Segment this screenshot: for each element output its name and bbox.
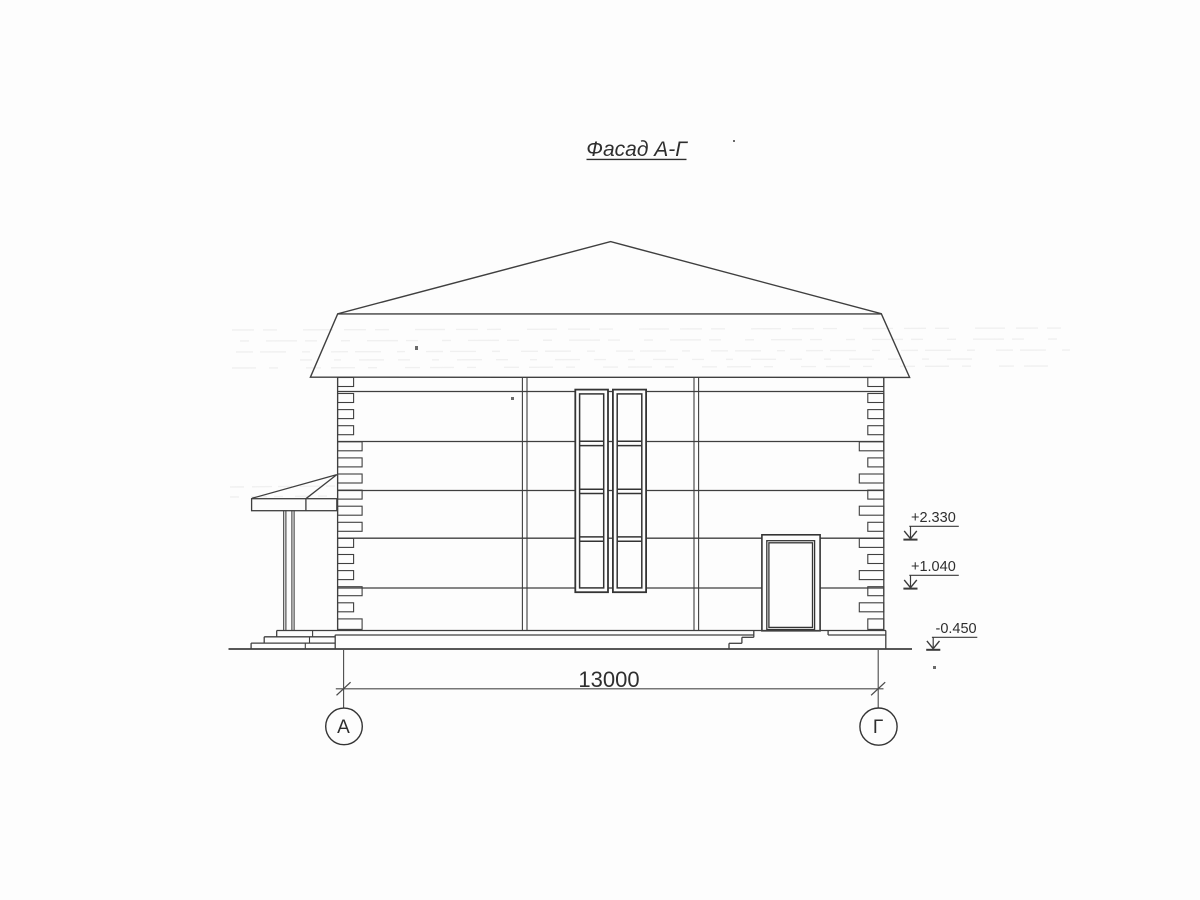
svg-text:Г: Г xyxy=(873,717,883,738)
svg-text:А: А xyxy=(337,717,350,738)
svg-text:-0.450: -0.450 xyxy=(936,621,977,637)
svg-text:13000: 13000 xyxy=(578,667,639,692)
svg-text:Фасад А-Г: Фасад А-Г xyxy=(586,138,688,161)
svg-text:+1.040: +1.040 xyxy=(911,559,956,575)
svg-text:+2.330: +2.330 xyxy=(911,510,956,526)
